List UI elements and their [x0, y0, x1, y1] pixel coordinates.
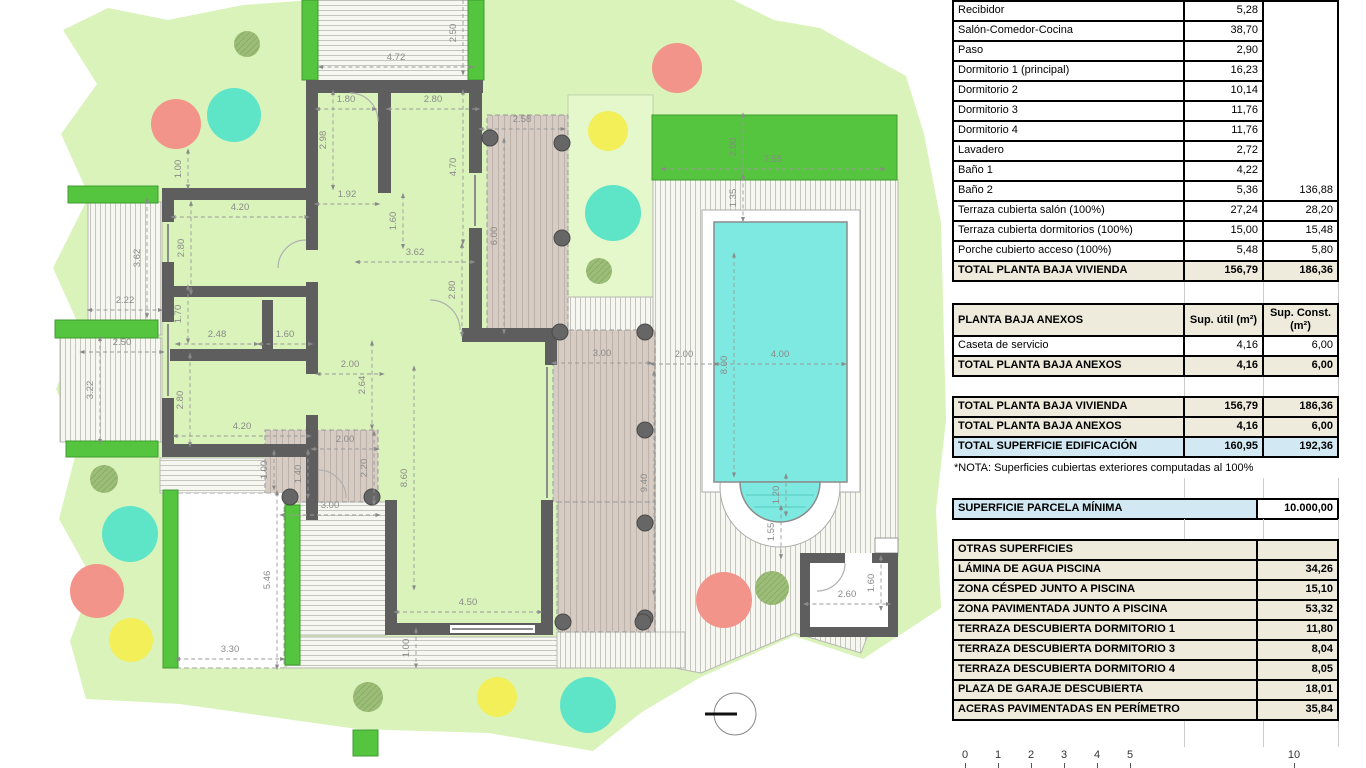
grid-line [1263, 721, 1264, 747]
table-row: TOTAL PLANTA BAJA ANEXOS4,166,00 [954, 357, 1339, 377]
table-row: TOTAL PLANTA BAJA VIVIENDA156,79186,36 [954, 398, 1339, 418]
table-row: Caseta de servicio4,166,00 [954, 337, 1339, 357]
grid-line [1184, 519, 1185, 539]
grid-line [1263, 519, 1264, 539]
value-sup-const: 6,00 [1264, 337, 1339, 357]
value-sup-const: 6,00 [1264, 357, 1339, 377]
value-sup-util: 38,70 [1185, 22, 1264, 42]
row-label: TOTAL PLANTA BAJA ANEXOS [954, 357, 1185, 377]
value-sup-const: 186,36 [1264, 262, 1339, 282]
value-sup-const: 5,80 [1264, 242, 1339, 262]
row-label: TOTAL PLANTA BAJA ANEXOS [954, 418, 1185, 438]
table: Recibidor5,28Salón-Comedor-Cocina38,70Pa… [952, 0, 1339, 282]
grid-line [1184, 377, 1185, 396]
row-value: 35,84 [1258, 701, 1339, 721]
table-row: Dormitorio 210,14 [954, 82, 1339, 102]
table-row: TERRAZA DESCUBIERTA DORMITORIO 48,05 [954, 661, 1339, 681]
table: TOTAL PLANTA BAJA VIVIENDA156,79186,36TO… [952, 396, 1339, 458]
table-row: Porche cubierto acceso (100%)5,485,80 [954, 242, 1339, 262]
value-sup-util: 5,36 [1185, 182, 1264, 202]
row-label: Dormitorio 2 [954, 82, 1185, 102]
area-tables-panel: Recibidor5,28Salón-Comedor-Cocina38,70Pa… [0, 0, 1366, 768]
row-value: 15,10 [1258, 581, 1339, 601]
parcela-label: SUPERFICIE PARCELA MÍNIMA [954, 500, 1258, 520]
value-sup-util: 4,16 [1185, 337, 1264, 357]
scale-number: 1 [995, 749, 1001, 761]
row-value: 8,05 [1258, 661, 1339, 681]
table-row: Baño 14,22 [954, 162, 1339, 182]
row-value: 53,32 [1258, 601, 1339, 621]
grid-line [1338, 282, 1339, 303]
table-row: Dormitorio 1 (principal)16,23 [954, 62, 1339, 82]
table-row: Terraza cubierta dormitorios (100%)15,00… [954, 222, 1339, 242]
table: OTRAS SUPERFICIESLÁMINA DE AGUA PISCINA3… [952, 539, 1339, 721]
table-row: TOTAL SUPERFICIE EDIFICACIÓN160,95192,36 [954, 438, 1339, 458]
row-label: TERRAZA DESCUBIERTA DORMITORIO 4 [954, 661, 1258, 681]
header-sup-util: Sup. útil (m²) [1185, 305, 1264, 337]
table-row: Lavadero2,72 [954, 142, 1339, 162]
value-sup-util: 4,16 [1185, 357, 1264, 377]
scale-tick [1097, 763, 1098, 768]
value-sup-util: 5,28 [1185, 2, 1264, 22]
table-row: ACERAS PAVIMENTADAS EN PERÍMETRO35,84 [954, 701, 1339, 721]
value-sup-util: 156,79 [1185, 262, 1264, 282]
parcela-value: 10.000,00 [1258, 500, 1339, 520]
note-text: *NOTA: Superficies cubiertas exteriores … [954, 462, 1253, 474]
row-label: Paso [954, 42, 1185, 62]
empty-cell [1264, 102, 1339, 122]
table-row: Paso2,90 [954, 42, 1339, 62]
row-label: Recibidor [954, 2, 1185, 22]
row-label: TERRAZA DESCUBIERTA DORMITORIO 3 [954, 641, 1258, 661]
empty-cell [1264, 22, 1339, 42]
header-planta-baja-anexos: PLANTA BAJA ANEXOS [954, 305, 1185, 337]
table-row: TOTAL PLANTA BAJA VIVIENDA156,79186,36 [954, 262, 1339, 282]
table-right-edge [1337, 0, 1339, 204]
value-sup-const: 6,00 [1264, 418, 1339, 438]
value-sup-util: 4,22 [1185, 162, 1264, 182]
scale-tick [1294, 763, 1295, 768]
empty-cell [1264, 142, 1339, 162]
row-value: 8,04 [1258, 641, 1339, 661]
scale-tick [1130, 763, 1131, 768]
value-sup-const: 192,36 [1264, 438, 1339, 458]
table-row: TERRAZA DESCUBIERTA DORMITORIO 38,04 [954, 641, 1339, 661]
table-row: SUPERFICIE PARCELA MÍNIMA10.000,00 [954, 500, 1339, 520]
row-label: ZONA PAVIMENTADA JUNTO A PISCINA [954, 601, 1258, 621]
header-sup-const: Sup. Const. (m²) [1264, 305, 1339, 337]
empty-cell [1258, 541, 1339, 561]
scale-tick [1031, 763, 1032, 768]
value-sup-util: 156,79 [1185, 398, 1264, 418]
table-row: Baño 25,36136,88 [954, 182, 1339, 202]
value-sup-util: 4,16 [1185, 418, 1264, 438]
value-sup-const: 28,20 [1264, 202, 1339, 222]
row-label: Salón-Comedor-Cocina [954, 22, 1185, 42]
value-sup-const: 15,48 [1264, 222, 1339, 242]
value-sup-util: 10,14 [1185, 82, 1264, 102]
table-row: ZONA PAVIMENTADA JUNTO A PISCINA53,32 [954, 601, 1339, 621]
scale-tick [1064, 763, 1065, 768]
scale-tick [998, 763, 999, 768]
empty-cell [1264, 42, 1339, 62]
row-value: 34,26 [1258, 561, 1339, 581]
grid-line [1263, 282, 1264, 303]
row-label: Terraza cubierta salón (100%) [954, 202, 1185, 222]
header-otras-superficies: OTRAS SUPERFICIES [954, 541, 1258, 561]
table-row: TOTAL PLANTA BAJA ANEXOS4,166,00 [954, 418, 1339, 438]
table-row: TERRAZA DESCUBIERTA DORMITORIO 111,80 [954, 621, 1339, 641]
row-label: Baño 2 [954, 182, 1185, 202]
value-sup-util: 11,76 [1185, 122, 1264, 142]
grid-line [1263, 377, 1264, 396]
table-row: Salón-Comedor-Cocina38,70 [954, 22, 1339, 42]
grid-line [1184, 282, 1185, 303]
scale-tick [965, 763, 966, 768]
row-label: LÁMINA DE AGUA PISCINA [954, 561, 1258, 581]
empty-cell [1264, 162, 1339, 182]
floor-plan-sheet: { "plan": { "colors": { "grass": "#daf3b… [0, 0, 1366, 768]
scale-number: 5 [1127, 749, 1133, 761]
table-row: Dormitorio 311,76 [954, 102, 1339, 122]
grid-line [1338, 519, 1339, 539]
empty-cell [1264, 62, 1339, 82]
row-label: TERRAZA DESCUBIERTA DORMITORIO 1 [954, 621, 1258, 641]
grid-line [1338, 478, 1339, 498]
value-sup-const: 136,88 [1264, 182, 1339, 202]
grid-line [1184, 721, 1185, 747]
table-header-row: PLANTA BAJA ANEXOSSup. útil (m²)Sup. Con… [954, 305, 1339, 337]
scale-number: 10 [1288, 749, 1300, 761]
scale-number: 4 [1094, 749, 1100, 761]
value-sup-util: 5,48 [1185, 242, 1264, 262]
row-label: Terraza cubierta dormitorios (100%) [954, 222, 1185, 242]
table-row: LÁMINA DE AGUA PISCINA34,26 [954, 561, 1339, 581]
table-row: PLAZA DE GARAJE DESCUBIERTA18,01 [954, 681, 1339, 701]
row-value: 11,80 [1258, 621, 1339, 641]
scale-number: 2 [1028, 749, 1034, 761]
value-sup-util: 16,23 [1185, 62, 1264, 82]
value-sup-util: 2,90 [1185, 42, 1264, 62]
empty-cell [1264, 2, 1339, 22]
grid-line [1263, 478, 1264, 498]
table-row: ZONA CÉSPED JUNTO A PISCINA15,10 [954, 581, 1339, 601]
row-label: Caseta de servicio [954, 337, 1185, 357]
row-label: TOTAL PLANTA BAJA VIVIENDA [954, 262, 1185, 282]
value-sup-util: 15,00 [1185, 222, 1264, 242]
grid-line [1338, 377, 1339, 396]
scale-number: 0 [962, 749, 968, 761]
row-label: ACERAS PAVIMENTADAS EN PERÍMETRO [954, 701, 1258, 721]
value-sup-util: 11,76 [1185, 102, 1264, 122]
scale-number: 3 [1061, 749, 1067, 761]
value-sup-util: 160,95 [1185, 438, 1264, 458]
table: PLANTA BAJA ANEXOSSup. útil (m²)Sup. Con… [952, 303, 1339, 377]
row-label: PLAZA DE GARAJE DESCUBIERTA [954, 681, 1258, 701]
value-sup-const: 186,36 [1264, 398, 1339, 418]
row-label: Dormitorio 4 [954, 122, 1185, 142]
value-sup-util: 2,72 [1185, 142, 1264, 162]
row-label: Dormitorio 1 (principal) [954, 62, 1185, 82]
grid-line [1184, 478, 1185, 498]
row-label: TOTAL PLANTA BAJA VIVIENDA [954, 398, 1185, 418]
table-header-row: OTRAS SUPERFICIES [954, 541, 1339, 561]
table: SUPERFICIE PARCELA MÍNIMA10.000,00 [952, 498, 1339, 520]
value-sup-util: 27,24 [1185, 202, 1264, 222]
table-row: Dormitorio 411,76 [954, 122, 1339, 142]
empty-cell [1264, 82, 1339, 102]
row-label: ZONA CÉSPED JUNTO A PISCINA [954, 581, 1258, 601]
table-row: Recibidor5,28 [954, 2, 1339, 22]
row-label: Baño 1 [954, 162, 1185, 182]
empty-cell [1264, 122, 1339, 142]
row-value: 18,01 [1258, 681, 1339, 701]
table-row: Terraza cubierta salón (100%)27,2428,20 [954, 202, 1339, 222]
row-label: Porche cubierto acceso (100%) [954, 242, 1185, 262]
row-label: Lavadero [954, 142, 1185, 162]
grid-line [1338, 721, 1339, 747]
row-label: TOTAL SUPERFICIE EDIFICACIÓN [954, 438, 1185, 458]
row-label: Dormitorio 3 [954, 102, 1185, 122]
